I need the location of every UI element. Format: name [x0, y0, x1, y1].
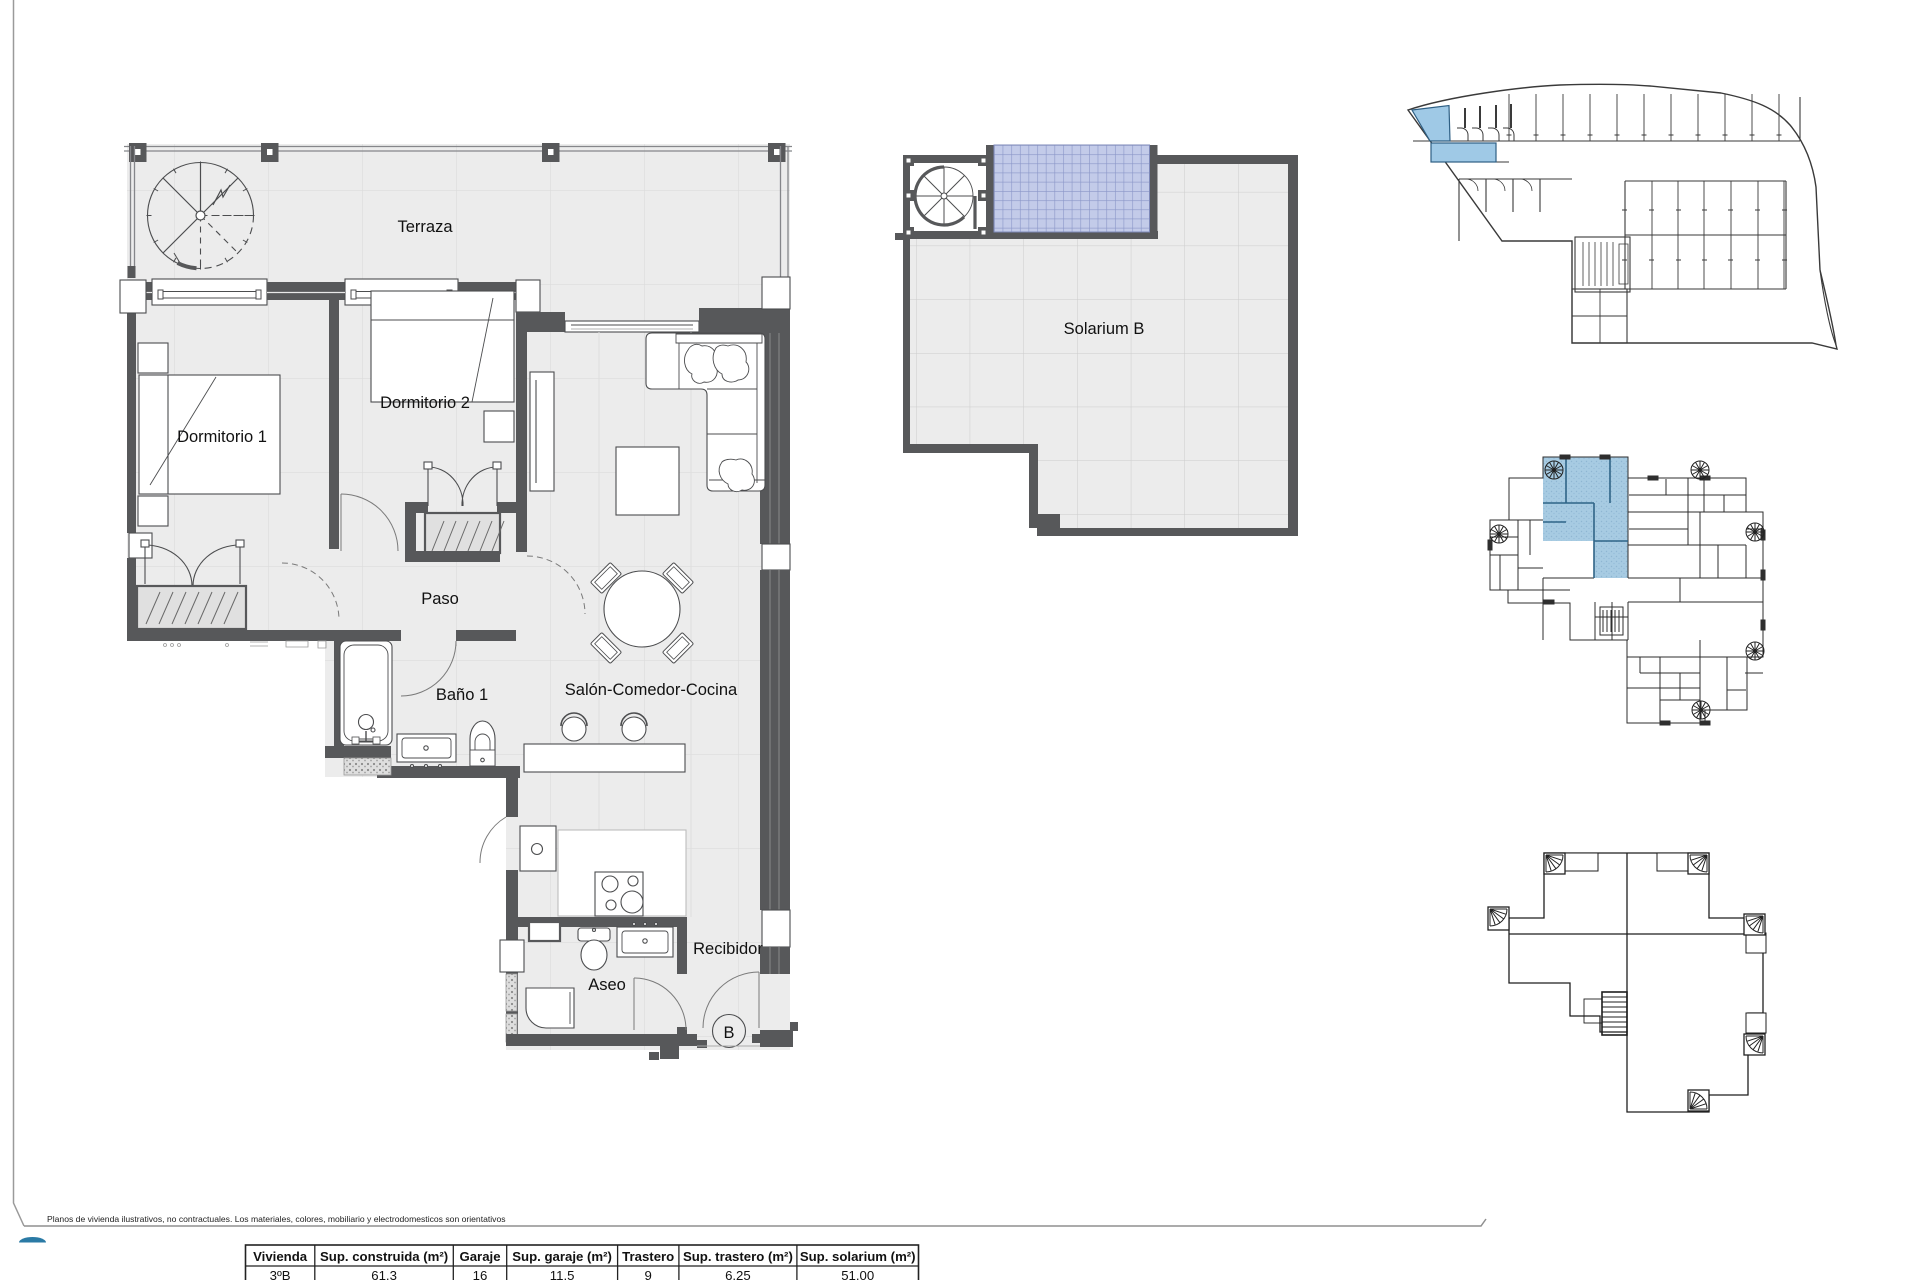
svg-text:9: 9: [645, 1268, 652, 1280]
svg-text:Dormitorio 2: Dormitorio 2: [380, 394, 470, 412]
svg-text:Terraza: Terraza: [397, 218, 453, 236]
svg-text:51.00: 51.00: [841, 1268, 874, 1280]
svg-text:Sup. trastero (m²): Sup. trastero (m²): [683, 1249, 793, 1264]
svg-text:Sup. solarium (m²): Sup. solarium (m²): [800, 1249, 916, 1264]
svg-text:3ºB: 3ºB: [270, 1268, 291, 1280]
svg-text:16: 16: [473, 1268, 488, 1280]
svg-text:Sup. construida (m²): Sup. construida (m²): [320, 1249, 448, 1264]
svg-text:Sup. garaje (m²): Sup. garaje (m²): [512, 1249, 612, 1264]
svg-text:Planos de vivienda ilustrativo: Planos de vivienda ilustrativos, no cont…: [47, 1214, 506, 1224]
svg-text:61.3: 61.3: [371, 1268, 397, 1280]
svg-text:Solarium B: Solarium B: [1064, 320, 1145, 338]
svg-text:Vivienda: Vivienda: [253, 1249, 308, 1264]
svg-text:11.5: 11.5: [550, 1268, 575, 1280]
svg-text:Trastero: Trastero: [622, 1249, 674, 1264]
svg-text:Garaje: Garaje: [459, 1249, 500, 1264]
svg-text:Salón-Comedor-Cocina: Salón-Comedor-Cocina: [565, 681, 738, 699]
svg-text:Aseo: Aseo: [588, 976, 626, 994]
svg-text:B: B: [723, 1024, 734, 1042]
svg-text:Paso: Paso: [421, 590, 459, 608]
svg-text:6.25: 6.25: [725, 1268, 751, 1280]
svg-text:Recibidor: Recibidor: [693, 940, 763, 958]
svg-text:Dormitorio 1: Dormitorio 1: [177, 428, 267, 446]
svg-text:Baño 1: Baño 1: [436, 686, 488, 704]
